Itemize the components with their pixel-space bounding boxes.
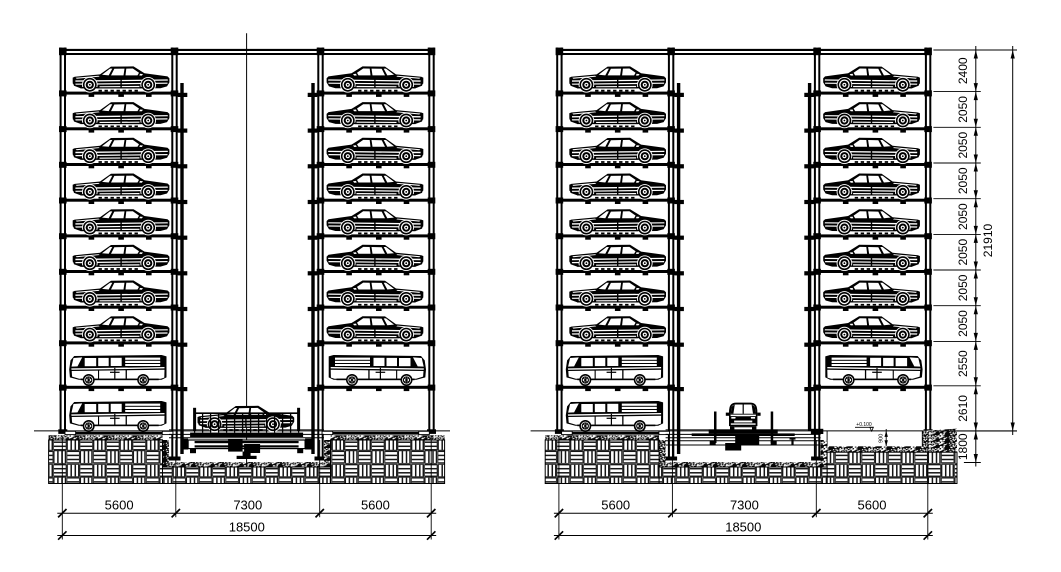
svg-text:18500: 18500 [229,520,265,535]
svg-text:7300: 7300 [730,497,759,512]
svg-text:2050: 2050 [956,167,970,194]
svg-text:5600: 5600 [361,497,390,512]
svg-text:900: 900 [879,434,885,443]
svg-text:21910: 21910 [981,223,995,257]
svg-text:2050: 2050 [956,239,970,266]
svg-text:2550: 2550 [956,350,970,377]
svg-text:5600: 5600 [858,497,887,512]
svg-text:2400: 2400 [956,57,970,84]
svg-text:2050: 2050 [956,310,970,337]
svg-text:18500: 18500 [725,520,761,535]
svg-text:2050: 2050 [956,96,970,123]
svg-text:2610: 2610 [956,395,970,422]
svg-text:7300: 7300 [233,497,262,512]
svg-text:5600: 5600 [105,497,134,512]
svg-text:2050: 2050 [956,274,970,301]
svg-text:2050: 2050 [956,203,970,230]
svg-text:2050: 2050 [956,132,970,159]
svg-text:1800: 1800 [956,433,970,460]
svg-text:5600: 5600 [601,497,630,512]
